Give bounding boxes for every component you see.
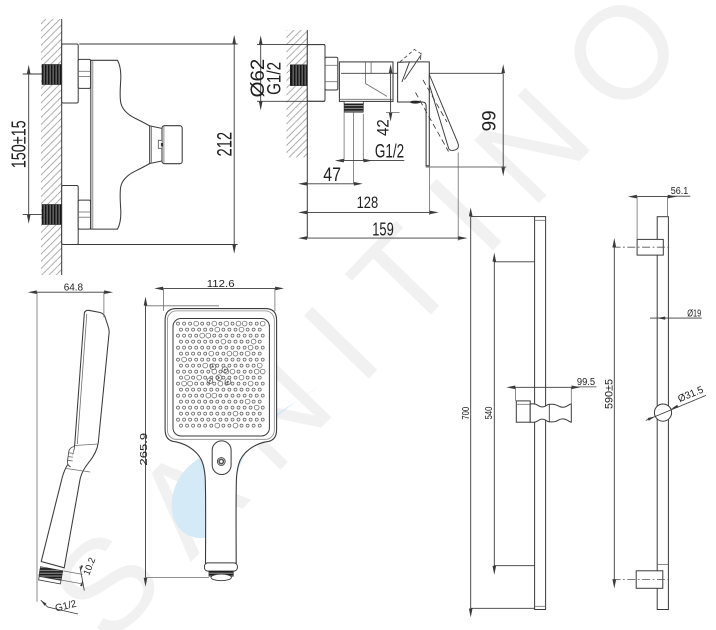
svg-text:128: 128 xyxy=(357,193,379,212)
svg-text:Ø19: Ø19 xyxy=(687,308,701,319)
svg-text:112.6: 112.6 xyxy=(207,279,235,290)
svg-text:G1/2: G1/2 xyxy=(375,142,404,163)
svg-text:590±5: 590±5 xyxy=(604,379,616,409)
svg-text:56.1: 56.1 xyxy=(671,186,689,197)
svg-text:42: 42 xyxy=(373,119,392,136)
svg-text:99: 99 xyxy=(480,110,501,131)
svg-text:212: 212 xyxy=(214,132,237,157)
svg-text:700: 700 xyxy=(460,407,472,420)
svg-text:150±15: 150±15 xyxy=(9,120,31,168)
svg-text:265.9: 265.9 xyxy=(139,432,150,465)
svg-text:159: 159 xyxy=(372,219,394,239)
svg-text:G1/2: G1/2 xyxy=(265,62,286,95)
svg-text:64.8: 64.8 xyxy=(64,283,84,294)
svg-text:47: 47 xyxy=(323,165,341,186)
svg-text:540: 540 xyxy=(483,406,495,419)
